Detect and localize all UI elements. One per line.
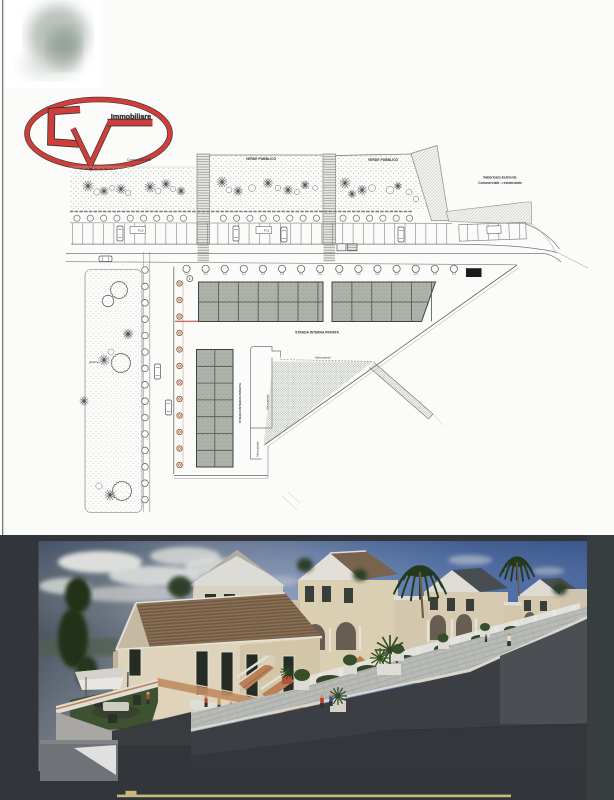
svg-text:VERDE PUBBLICO: VERDE PUBBLICO <box>246 157 277 161</box>
svg-text:Marciapiede: Marciapiede <box>315 356 331 360</box>
svg-text:giardino: giardino <box>89 360 99 364</box>
svg-text:P.10: P.10 <box>138 229 144 233</box>
svg-text:STRADA INTERNA PRIVATA: STRADA INTERNA PRIVATA <box>295 331 339 335</box>
svg-text:Marciapiede: Marciapiede <box>256 441 260 457</box>
svg-text:VERDE PUBBLICO: VERDE PUBBLICO <box>368 158 399 162</box>
svg-text:P.11: P.11 <box>264 229 270 233</box>
svg-text:STRADA INTERNA PRIVATA: STRADA INTERNA PRIVATA <box>238 382 242 423</box>
svg-text:Immobiliare: Immobiliare <box>111 112 151 121</box>
svg-text:Fabbricato Esistente: Fabbricato Esistente <box>483 176 516 180</box>
svg-text:Commerciale - residenziale: Commerciale - residenziale <box>478 181 522 185</box>
svg-text:Costruzioni edili: Costruzioni edili <box>127 158 151 162</box>
